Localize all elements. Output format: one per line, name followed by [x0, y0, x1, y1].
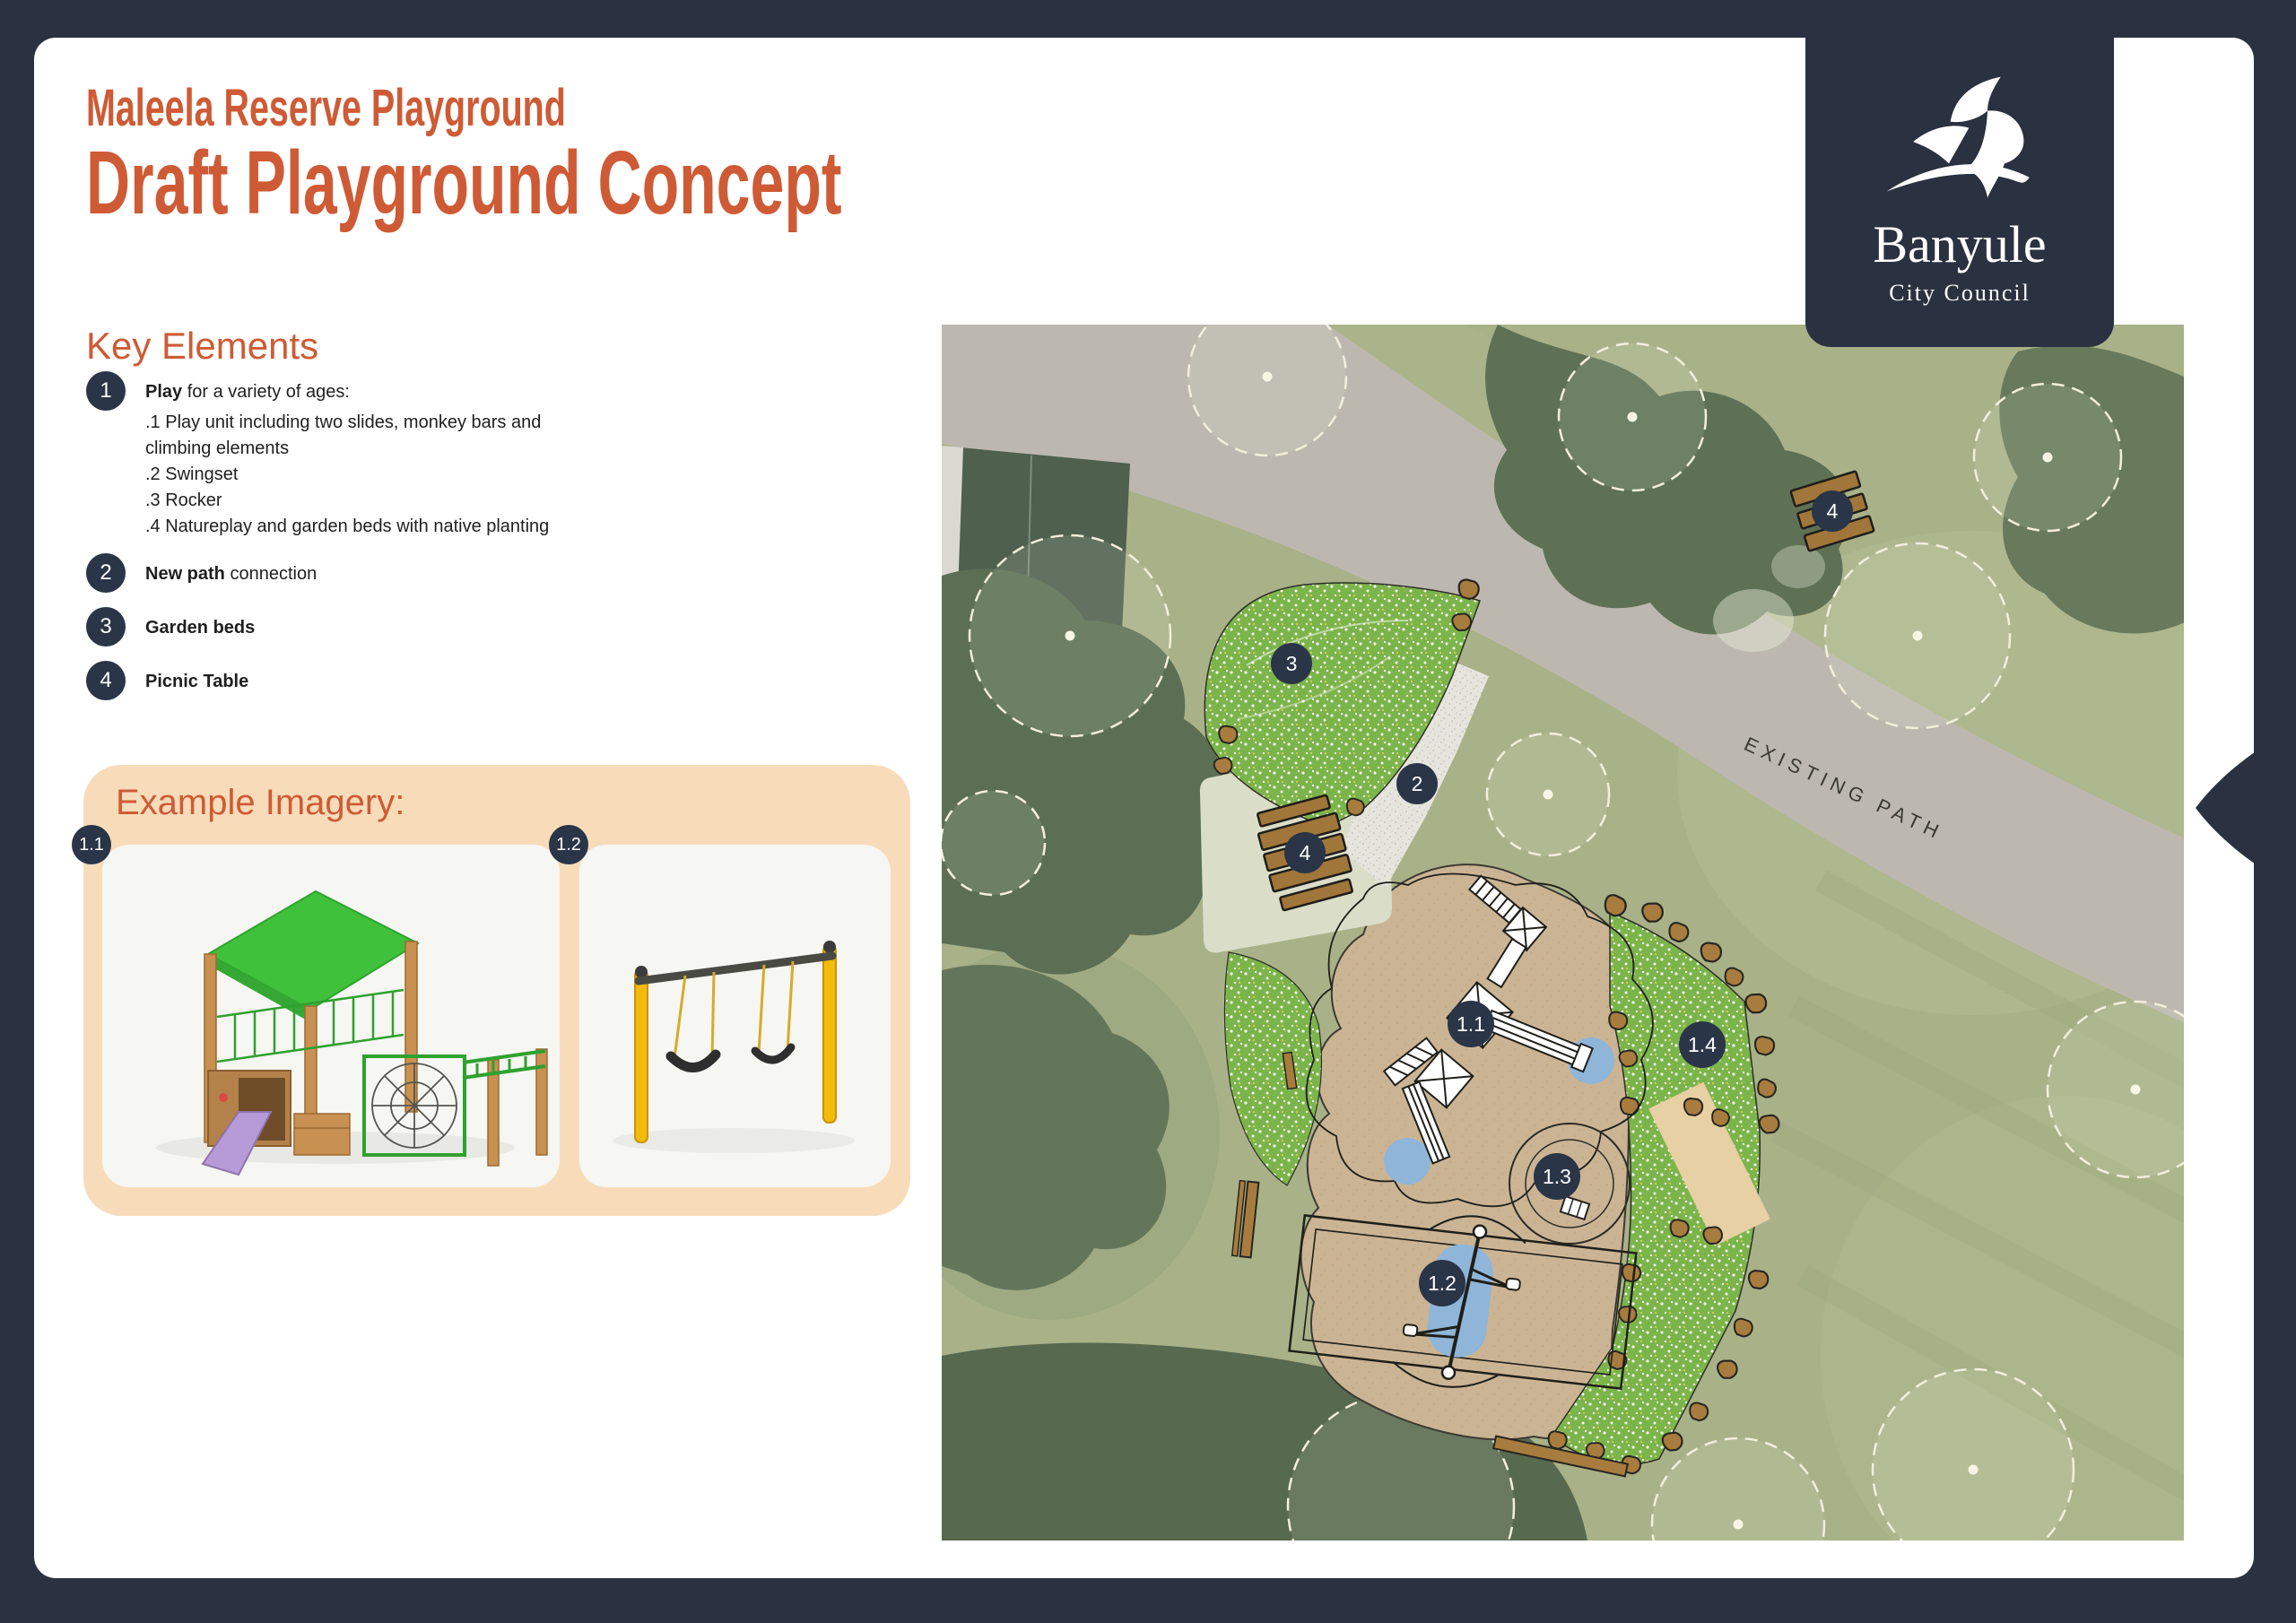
play-unit-illustration	[102, 845, 560, 1187]
council-name: Banyule	[1873, 219, 2046, 271]
key-text-2: New path connection	[145, 553, 317, 593]
badge-picnic-top: 4	[1812, 490, 1853, 532]
concept-plan-page: Maleela Reserve Playground Draft Playgro…	[0, 0, 2296, 1623]
key-bold-2: New path	[145, 564, 225, 584]
concept-plan-map: EXISTING PATH	[942, 325, 2184, 1541]
badge-rocker: 1.3	[1534, 1153, 1580, 1200]
key-element-1: 1 Play for a variety of ages: .1 Play un…	[86, 371, 549, 540]
council-logo: Banyule City Council	[1805, 38, 2114, 347]
badge-natureplay: 1.4	[1679, 1021, 1726, 1068]
example-card-swingset	[579, 845, 891, 1187]
key-element-3: 3 Garden beds	[86, 607, 255, 647]
svg-text:4: 4	[1827, 499, 1839, 523]
key-sublist: .1 Play unit including two slides, monke…	[145, 410, 549, 540]
badge-garden-bed: 3	[1271, 643, 1312, 684]
svg-text:4: 4	[1300, 841, 1311, 864]
sub-item-3: .3 Rocker	[145, 488, 549, 514]
sub-item-1b: climbing elements	[145, 436, 549, 462]
key-elements-heading: Key Elements	[86, 325, 318, 368]
page-content: Maleela Reserve Playground Draft Playgro…	[34, 38, 2254, 1578]
key-text-4: Picnic Table	[145, 661, 248, 700]
banyule-bird-icon	[1874, 75, 2045, 210]
example-imagery-heading: Example Imagery:	[116, 783, 404, 823]
svg-text:1.2: 1.2	[1428, 1271, 1457, 1295]
sub-item-2: .2 Swingset	[145, 462, 549, 488]
svg-text:2: 2	[1412, 772, 1423, 795]
badge-swingset: 1.2	[1419, 1260, 1465, 1306]
key-element-4: 4 Picnic Table	[86, 661, 248, 700]
badge-picnic-pad: 4	[1284, 832, 1326, 873]
key-element-2: 2 New path connection	[86, 553, 317, 593]
svg-text:3: 3	[1286, 652, 1298, 675]
key-bold-1: Play	[145, 382, 182, 402]
key-rest-1: for a variety of ages:	[182, 382, 350, 402]
spider-web-net	[372, 1063, 457, 1148]
sub-item-4: .4 Natureplay and garden beds with nativ…	[145, 514, 549, 540]
badge-play-unit: 1.1	[1448, 1001, 1494, 1047]
key-rest-2: connection	[225, 564, 317, 584]
frame-tab	[2188, 742, 2296, 873]
key-bold-4: Picnic Table	[145, 672, 248, 691]
svg-text:1.4: 1.4	[1688, 1033, 1717, 1056]
softfall-circle	[1384, 1138, 1431, 1185]
card-badge-1-2: 1.2	[549, 825, 588, 864]
page-title: Draft Playground Concept	[86, 138, 841, 228]
aerial-map: EXISTING PATH	[942, 325, 2184, 1541]
example-imagery-panel: Example Imagery:	[83, 765, 910, 1216]
key-number-1: 1	[86, 371, 126, 411]
key-bold-3: Garden beds	[145, 618, 255, 638]
key-number-3: 3	[86, 607, 126, 647]
page-subtitle: Maleela Reserve Playground	[86, 82, 566, 135]
key-text-3: Garden beds	[145, 607, 255, 647]
key-number-2: 2	[86, 553, 126, 593]
example-card-play-unit	[102, 845, 560, 1187]
svg-text:1.1: 1.1	[1457, 1012, 1485, 1036]
card-badge-1-1: 1.1	[72, 825, 111, 864]
badge-new-path: 2	[1396, 763, 1438, 804]
svg-text:1.3: 1.3	[1543, 1165, 1571, 1188]
sub-item-1a: .1 Play unit including two slides, monke…	[145, 410, 549, 436]
key-number-4: 4	[86, 661, 126, 700]
swingset-illustration	[579, 845, 891, 1187]
council-subtitle: City Council	[1889, 280, 2031, 307]
key-text-1: Play for a variety of ages: .1 Play unit…	[145, 371, 549, 540]
